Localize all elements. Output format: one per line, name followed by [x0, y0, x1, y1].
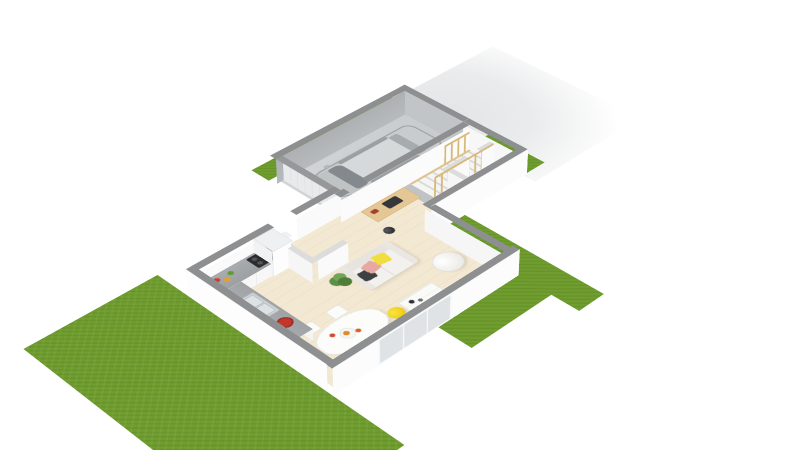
floor-plan-render [0, 0, 800, 450]
burner [256, 260, 264, 265]
desk-monitor [381, 196, 404, 209]
desk-red-item [370, 209, 380, 215]
napkin-red [328, 333, 336, 338]
fruit-green [226, 270, 235, 276]
decor-item-dark [408, 299, 416, 304]
fruit-yellow [222, 277, 231, 283]
